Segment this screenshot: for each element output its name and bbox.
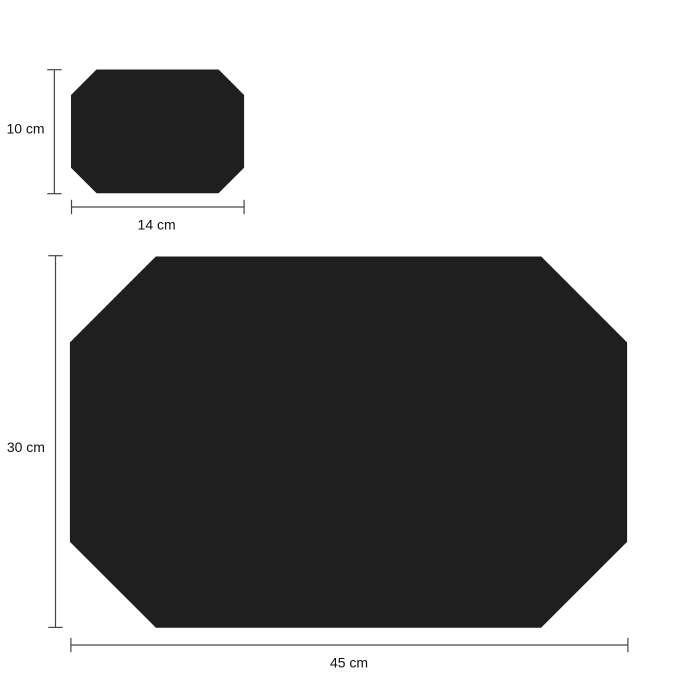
svg-text:30 cm: 30 cm — [7, 439, 45, 455]
svg-text:10 cm: 10 cm — [6, 121, 44, 137]
svg-text:45 cm: 45 cm — [330, 655, 368, 671]
svg-text:14 cm: 14 cm — [138, 217, 176, 233]
